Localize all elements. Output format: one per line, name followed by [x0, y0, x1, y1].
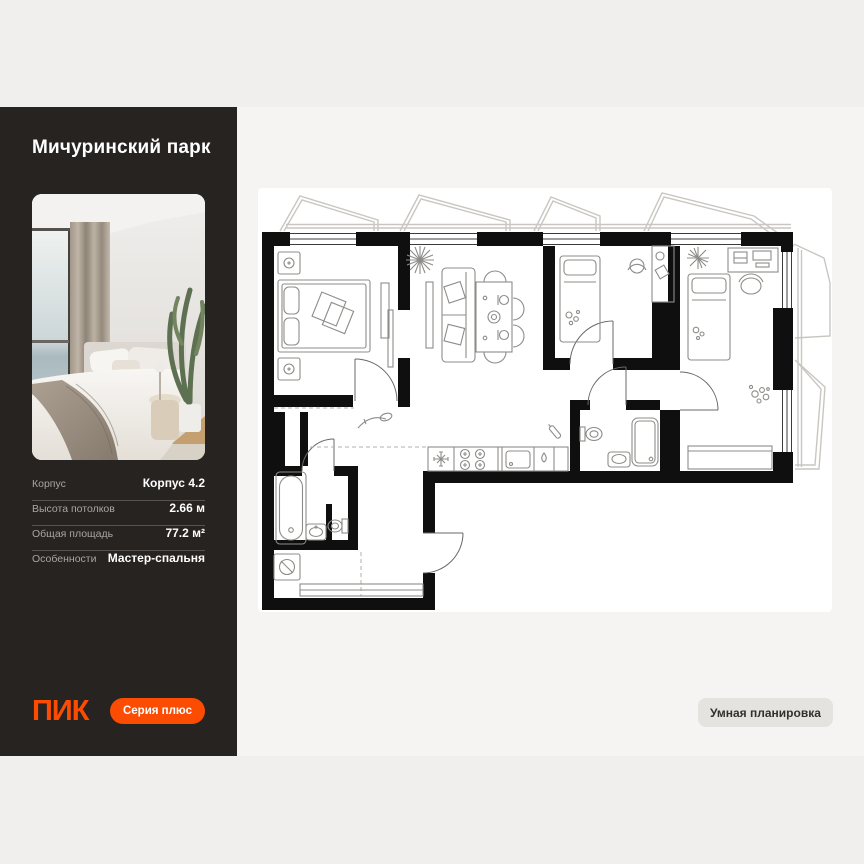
sink-icon [608, 452, 630, 467]
soap-icon [547, 423, 562, 439]
desk-icon [728, 248, 778, 272]
spec-value: 2.66 м [169, 501, 205, 515]
spec-table: Корпус Корпус 4.2 Высота потолков 2.66 м… [32, 476, 205, 576]
single-bed-icon [560, 256, 600, 342]
toilet-icon [580, 427, 602, 441]
kitchen-sink-icon [506, 451, 530, 468]
listing-card: Мичуринский парк [0, 107, 864, 756]
spec-value: Мастер-спальня [108, 551, 205, 565]
brand-row: ПИК Серия плюс [32, 696, 205, 726]
floor-plant-icon [749, 385, 769, 403]
wardrobe-icon [688, 446, 772, 469]
plan-panel: Умная планировка [237, 107, 864, 756]
project-title: Мичуринский парк [32, 137, 211, 159]
toilet-icon [328, 519, 348, 533]
spec-row-area: Общая площадь 77.2 м² [32, 526, 205, 551]
walls [262, 232, 793, 610]
washing-machine-icon [274, 554, 300, 580]
plant-icon [406, 246, 434, 274]
kettle-icon [542, 453, 547, 462]
spec-label: Высота потолков [32, 503, 115, 515]
sink-icon [306, 524, 326, 540]
floor-plan [258, 188, 832, 612]
office-chair-icon [739, 274, 763, 294]
stove-icon [461, 450, 485, 470]
master-bedroom-furniture [278, 252, 389, 380]
armchair-icon [628, 259, 646, 273]
bathtub-icon [276, 472, 306, 544]
tv-console-icon [426, 282, 433, 348]
spec-value: 77.2 м² [165, 526, 205, 540]
dining-table-icon [476, 271, 524, 363]
apartment-photo [32, 194, 205, 460]
spec-label: Особенности [32, 553, 96, 565]
single-bed-icon [688, 274, 730, 360]
series-plus-button[interactable]: Серия плюс [110, 698, 205, 724]
bedroom-photo-graphic [32, 194, 205, 460]
spec-value: Корпус 4.2 [143, 476, 205, 490]
spec-label: Общая площадь [32, 528, 113, 540]
twig-icon [358, 412, 393, 428]
spec-row-features: Особенности Мастер-спальня [32, 551, 205, 576]
pik-logo[interactable]: ПИК [32, 697, 88, 725]
spec-row-building: Корпус Корпус 4.2 [32, 476, 205, 501]
nightstand-icon [278, 358, 300, 380]
sofa-icon [442, 268, 475, 362]
toys-icon [566, 311, 580, 325]
bottom-margin-bar [0, 756, 864, 864]
shower-icon [632, 418, 658, 466]
plant-icon [687, 247, 709, 269]
info-sidebar: Мичуринский парк [0, 107, 237, 756]
spec-label: Корпус [32, 478, 66, 490]
bathroom1-furniture [274, 412, 393, 580]
spec-row-ceiling: Высота потолков 2.66 м [32, 501, 205, 526]
bedroom2-furniture [687, 247, 778, 469]
toys-icon [693, 327, 704, 339]
top-margin-bar [0, 0, 864, 107]
double-bed-icon [278, 280, 370, 352]
smart-layout-badge[interactable]: Умная планировка [698, 698, 833, 727]
window-lines [290, 234, 792, 453]
nightstand-icon [278, 252, 300, 274]
bathroom2-furniture [547, 418, 658, 467]
living-room-furniture [406, 246, 524, 363]
floor-plan-card [258, 188, 832, 612]
kitchen-counter [428, 447, 568, 471]
cooker-hood-icon [434, 452, 448, 466]
